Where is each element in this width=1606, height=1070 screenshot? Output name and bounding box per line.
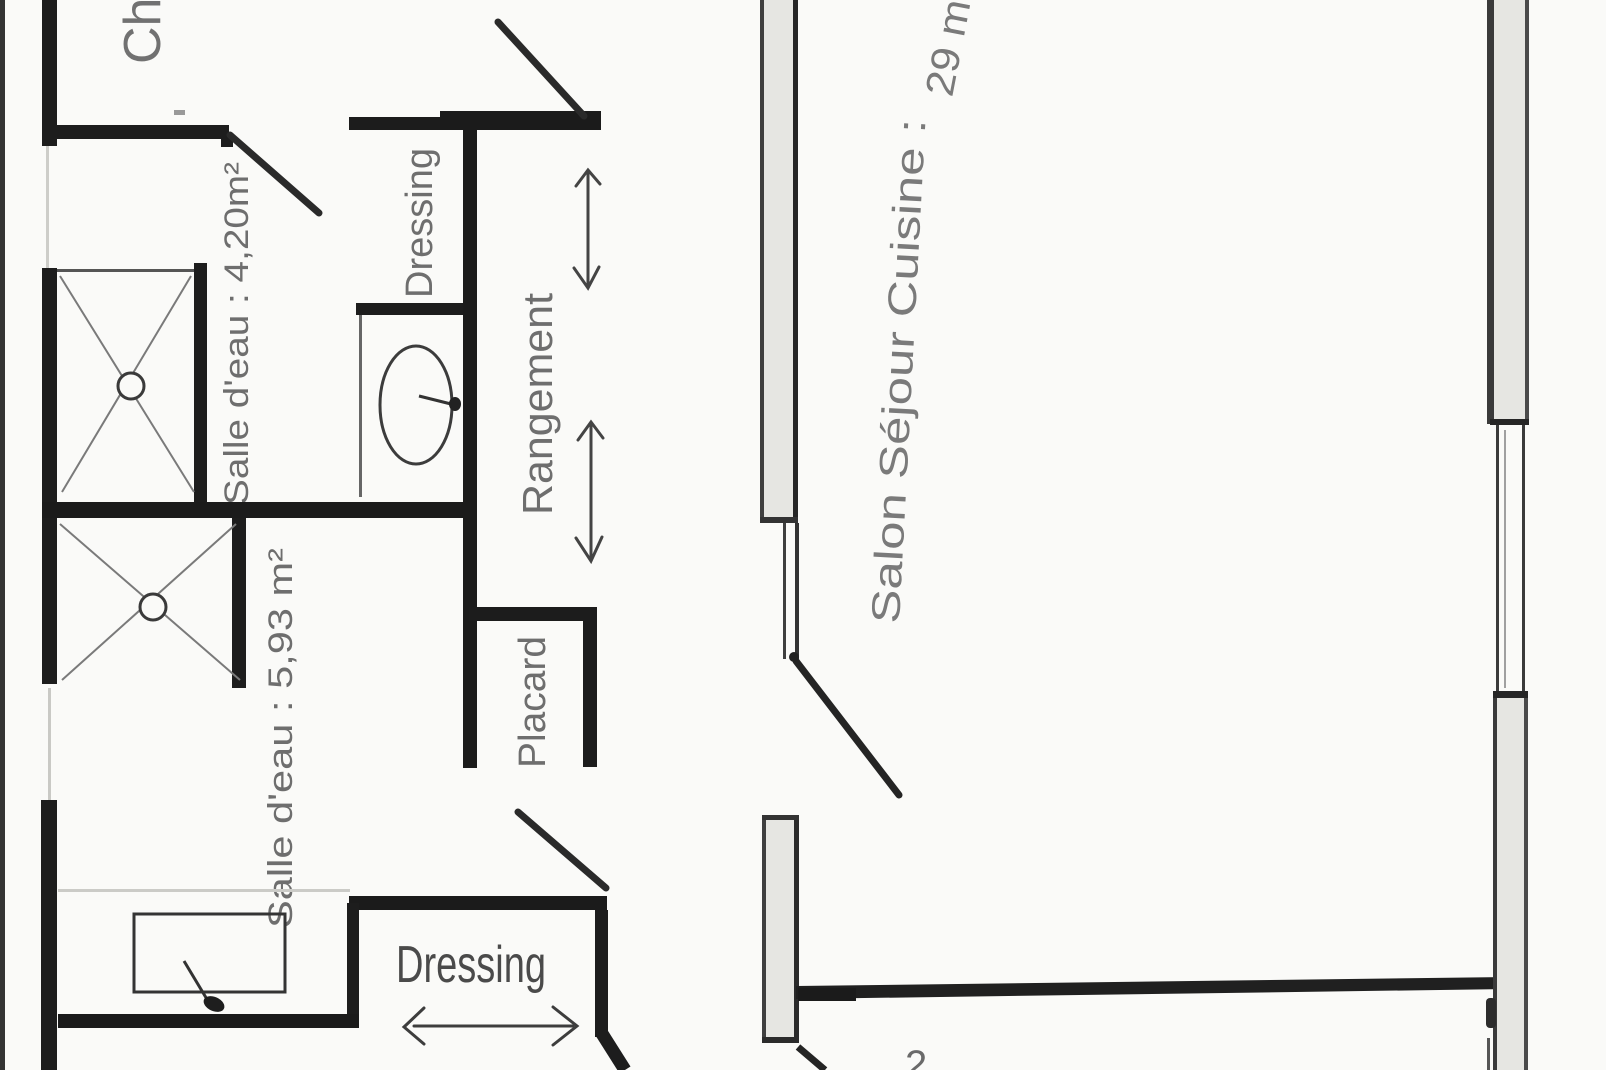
svg-text:Chambre: Chambre xyxy=(114,0,172,64)
svg-text:Dressing: Dressing xyxy=(399,148,441,298)
svg-text:2: 2 xyxy=(905,1043,927,1070)
svg-text:Salle d'eau : 5,93 m²: Salle d'eau : 5,93 m² xyxy=(262,548,300,928)
svg-text:Placard: Placard xyxy=(512,636,554,768)
svg-text:Dressing: Dressing xyxy=(396,936,546,994)
svg-text:Salle d'eau : 4,20m²: Salle d'eau : 4,20m² xyxy=(218,162,256,505)
svg-text:Rangement: Rangement xyxy=(514,293,561,515)
